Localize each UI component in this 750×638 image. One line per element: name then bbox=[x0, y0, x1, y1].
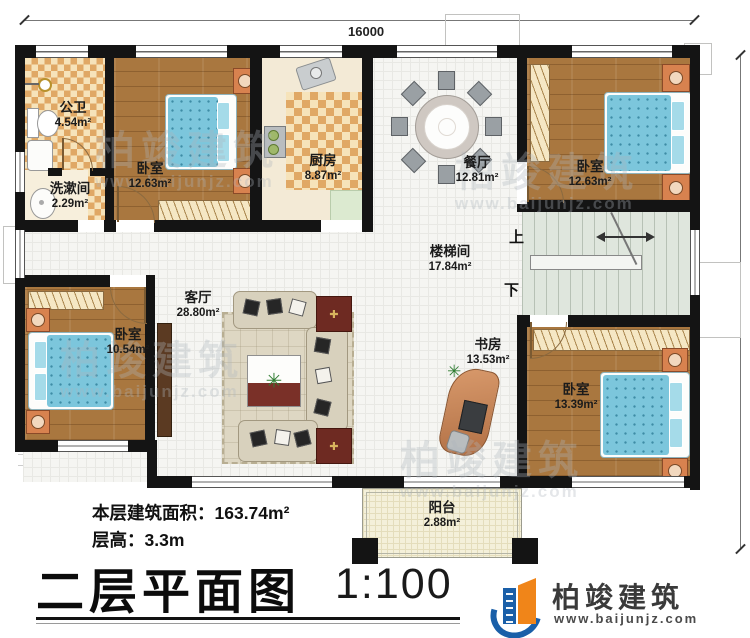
room-area: 12.63m² bbox=[129, 177, 172, 192]
door-opening bbox=[321, 220, 362, 232]
room-name: 卧室 bbox=[129, 161, 172, 177]
room-label-bedroom-tl: 卧室 12.63m² bbox=[129, 161, 172, 191]
room-area: 2.88m² bbox=[424, 516, 460, 531]
room-label-study: 书房 13.53m² bbox=[467, 337, 510, 367]
stair-arrow-left bbox=[596, 232, 605, 242]
medallion-icon: ✚ bbox=[329, 308, 338, 321]
room-area: 2.29m² bbox=[50, 197, 91, 212]
room-area: 12.81m² bbox=[456, 171, 499, 186]
stove-burner bbox=[268, 130, 279, 141]
room-label-bedroom-bl: 卧室 10.54m² bbox=[107, 327, 150, 357]
dining-table-center bbox=[438, 118, 456, 136]
floor-area-label: 本层建筑面积： bbox=[92, 503, 215, 523]
dining-chair bbox=[438, 165, 455, 184]
eave-outline bbox=[697, 262, 741, 338]
stove-burner bbox=[268, 144, 279, 155]
logo-icon bbox=[490, 576, 546, 630]
plant-icon: ✳ bbox=[266, 369, 283, 394]
door-leaf bbox=[527, 166, 529, 202]
kitchen-mat bbox=[330, 190, 364, 224]
room-label-balcony: 阳台 2.88m² bbox=[424, 500, 460, 530]
room-name: 卧室 bbox=[555, 382, 598, 398]
title-underline bbox=[36, 617, 460, 620]
room-label-bath: 公卫 4.54m² bbox=[55, 100, 91, 130]
title-underline-thin bbox=[36, 623, 460, 624]
room-label-bedroom-br: 卧室 13.39m² bbox=[555, 382, 598, 412]
room-area: 4.54m² bbox=[55, 116, 91, 131]
room-name: 洗漱间 bbox=[50, 181, 91, 197]
wash-basin-drain bbox=[39, 200, 44, 205]
room-name: 公卫 bbox=[55, 100, 91, 116]
room-area: 8.87m² bbox=[305, 169, 341, 184]
door-opening bbox=[517, 162, 527, 204]
sofa bbox=[238, 420, 318, 462]
room-label-stairwell: 楼梯间 17.84m² bbox=[429, 244, 472, 274]
room-name: 卧室 bbox=[569, 159, 612, 175]
window bbox=[36, 45, 88, 58]
medallion-icon: ✚ bbox=[329, 440, 338, 453]
room-area: 13.39m² bbox=[555, 398, 598, 413]
wardrobe bbox=[158, 200, 254, 222]
door-leaf bbox=[62, 138, 64, 170]
dining-chair bbox=[391, 117, 408, 136]
dining-chair bbox=[438, 71, 455, 90]
side-table: ✚ bbox=[316, 296, 352, 332]
bed bbox=[165, 94, 237, 170]
room-area: 12.63m² bbox=[569, 175, 612, 190]
bed bbox=[604, 92, 692, 174]
dining-chair bbox=[485, 117, 502, 136]
window bbox=[690, 230, 700, 295]
bed bbox=[28, 332, 114, 410]
floor-plan: 16000 11800 bbox=[0, 0, 750, 638]
room-label-living: 客厅 28.80m² bbox=[177, 290, 220, 320]
room-name: 书房 bbox=[467, 337, 510, 353]
room-label-bedroom-tr: 卧室 12.63m² bbox=[569, 159, 612, 189]
logo-url: www.baijunjz.com bbox=[554, 611, 698, 626]
plan-scale: 1:100 bbox=[335, 560, 453, 609]
door-opening bbox=[78, 220, 104, 232]
wall-bedroom-br-left bbox=[517, 315, 527, 488]
room-name: 餐厅 bbox=[456, 155, 499, 171]
door-leaf bbox=[530, 322, 532, 358]
wardrobe bbox=[530, 64, 550, 162]
stairs-up-label: 上 bbox=[509, 226, 524, 247]
window bbox=[58, 440, 128, 452]
stair-direction-line bbox=[604, 236, 648, 238]
stair-arrow-right bbox=[646, 232, 655, 242]
room-name: 楼梯间 bbox=[429, 244, 472, 260]
coffee-table: ✳ bbox=[247, 355, 301, 407]
stairs-down-label: 下 bbox=[504, 279, 519, 300]
logo: 柏竣建筑 www.baijunjz.com bbox=[490, 574, 740, 632]
room-area: 17.84m² bbox=[429, 260, 472, 275]
towel-bar bbox=[25, 83, 39, 85]
bed bbox=[600, 372, 690, 458]
room-label-dining: 餐厅 12.81m² bbox=[456, 155, 499, 185]
plan-title: 二层平面图 bbox=[36, 552, 301, 622]
window bbox=[280, 45, 342, 58]
room-name: 厨房 bbox=[305, 153, 341, 169]
window bbox=[192, 476, 332, 488]
wall-bath-divider bbox=[48, 168, 62, 176]
towel-ring bbox=[38, 78, 52, 92]
room-area: 28.80m² bbox=[177, 306, 220, 321]
window bbox=[572, 45, 672, 58]
floor-height-line: 层高：3.3m bbox=[92, 527, 184, 552]
room-name: 卧室 bbox=[107, 327, 150, 343]
window bbox=[572, 476, 684, 488]
tv-cabinet bbox=[157, 323, 172, 437]
washing-machine bbox=[27, 140, 53, 171]
window bbox=[15, 230, 25, 278]
room-area: 10.54m² bbox=[107, 343, 150, 358]
nightstand bbox=[26, 308, 50, 332]
wall-bedroom-kitchen bbox=[250, 58, 262, 220]
window bbox=[397, 45, 497, 58]
balcony-post bbox=[512, 538, 538, 564]
plant-icon: ✳ bbox=[447, 362, 461, 382]
room-area: 13.53m² bbox=[467, 353, 510, 368]
door-leaf bbox=[117, 186, 119, 222]
top-dimension-line bbox=[24, 20, 694, 21]
door-leaf bbox=[144, 287, 146, 323]
wall-bottom-right-of-balcony bbox=[500, 476, 560, 488]
room-label-kitchen: 厨房 8.87m² bbox=[305, 153, 341, 183]
room-label-washroom: 洗漱间 2.29m² bbox=[50, 181, 91, 211]
room-name: 阳台 bbox=[424, 500, 460, 516]
sofa bbox=[306, 327, 348, 431]
wall-kitchen-dining bbox=[362, 58, 373, 232]
nightstand bbox=[662, 348, 688, 372]
wall-hall-top bbox=[15, 220, 373, 232]
stair-handrail bbox=[530, 255, 642, 270]
nightstand bbox=[662, 64, 690, 92]
side-table: ✚ bbox=[316, 428, 352, 464]
door-opening bbox=[110, 275, 146, 287]
logo-name: 柏竣建筑 bbox=[552, 576, 684, 616]
window bbox=[136, 45, 227, 58]
window bbox=[15, 152, 25, 192]
balcony-door bbox=[404, 476, 500, 488]
nightstand bbox=[662, 174, 690, 202]
floor-area-line: 本层建筑面积：163.74m² bbox=[92, 500, 289, 525]
floor-area-value: 163.74m² bbox=[215, 503, 290, 523]
sofa bbox=[233, 291, 317, 329]
top-dimension-label: 16000 bbox=[348, 24, 384, 39]
room-name: 客厅 bbox=[177, 290, 220, 306]
nightstand bbox=[26, 410, 50, 434]
floor-height-value: 3.3m bbox=[145, 530, 185, 550]
floor-height-label: 层高： bbox=[92, 530, 145, 550]
wall-bath-bedroom bbox=[105, 58, 114, 228]
